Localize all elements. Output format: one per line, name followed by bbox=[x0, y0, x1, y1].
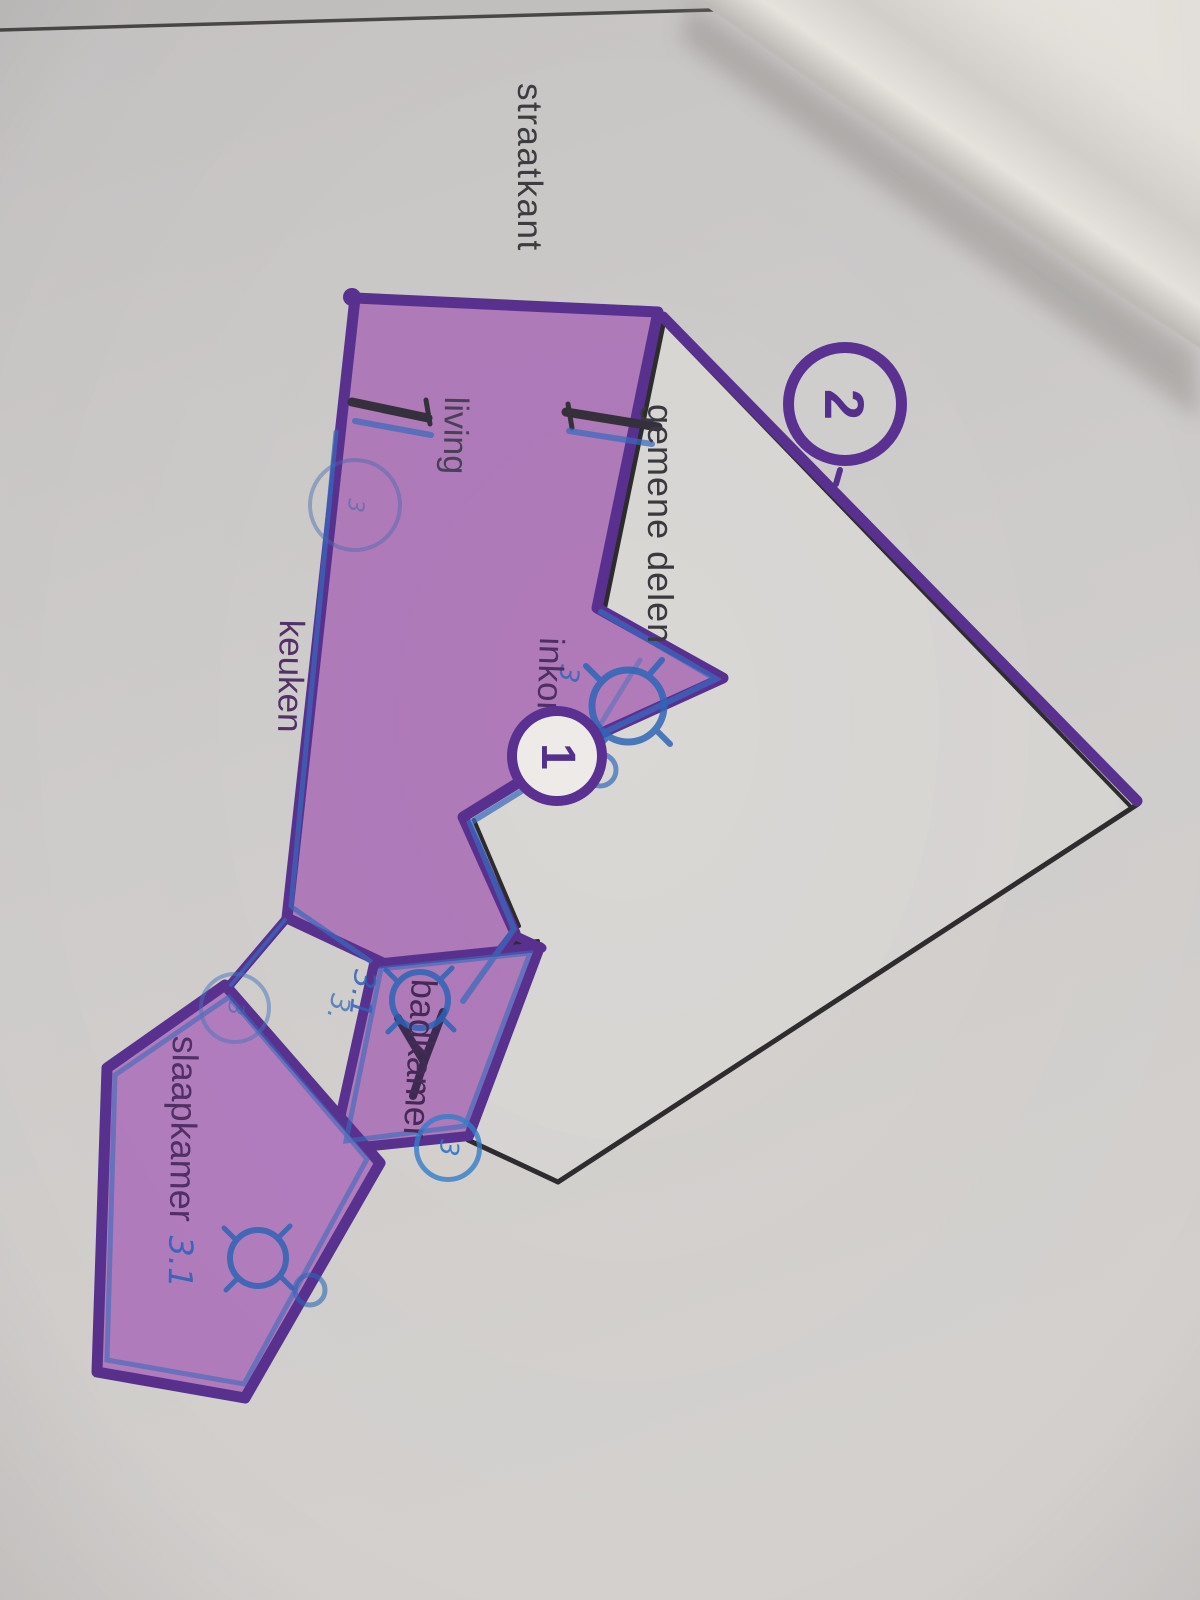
unit-marker-1: 1 bbox=[507, 706, 607, 806]
pen-unit-number-slaapkamer: 3.1 bbox=[161, 1235, 201, 1288]
room-label-keuken: keuken bbox=[270, 619, 309, 732]
unit-marker-1-number: 1 bbox=[529, 743, 584, 770]
room-label-slaapkamer: slaapkamer3.1 bbox=[162, 1035, 204, 1288]
room-label-gemene-delen: gemene delen bbox=[641, 404, 679, 644]
street-side-label: straatkant bbox=[510, 83, 547, 252]
pen-circle-slaapkamer-mark: 3 bbox=[222, 1000, 248, 1016]
photo-vignette bbox=[0, 0, 1200, 1600]
pen-circle-living-mark: 3 bbox=[342, 497, 368, 513]
pen-circle-slaapkamer: 3 bbox=[199, 972, 271, 1044]
room-label-slaapkamer-text: slaapkamer bbox=[162, 1035, 206, 1222]
unit-marker-2-number: 2 bbox=[813, 388, 878, 419]
photographed-floor-plan: straatkant gemene delen living keuken in… bbox=[0, 0, 1200, 1600]
pen-circle-badkamer-mark: 3 bbox=[432, 1138, 463, 1157]
unit-marker-2: 2 bbox=[783, 342, 907, 466]
floor-plan-drawing bbox=[0, 0, 1200, 1600]
room-label-living: living bbox=[436, 396, 473, 474]
pen-circle-living: 3 bbox=[308, 458, 402, 552]
pen-circle-badkamer: 3 bbox=[414, 1114, 482, 1182]
